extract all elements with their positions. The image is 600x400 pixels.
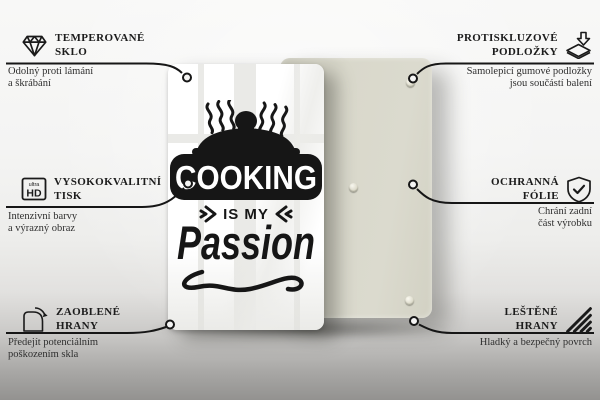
- artwork-word-passion: Passion: [177, 216, 315, 269]
- product-infographic-background: COOKING IS MY Passion: [0, 0, 600, 400]
- feature-title: LEŠTĚNÉ HRANY: [504, 305, 558, 333]
- anti-slip-pad: [405, 296, 414, 305]
- feature-subtitle: Intenzivní barvy a výrazný obraz: [8, 211, 180, 234]
- feature-subtitle: Odolný proti lámání a škrábání: [8, 66, 180, 89]
- svg-text:HD: HD: [26, 188, 42, 200]
- polished-edge-icon: [565, 306, 592, 333]
- artwork-word-cooking: COOKING: [175, 159, 317, 196]
- diamond-icon: [21, 32, 48, 59]
- cooking-artwork: COOKING IS MY Passion: [168, 100, 324, 330]
- feature-title: VYSOKOKVALITNÍ TISK: [54, 175, 161, 203]
- feature-subtitle: Hladký a bezpečný povrch: [392, 337, 592, 349]
- feature-title: TEMPEROVANÉ SKLO: [55, 31, 145, 59]
- feature-subtitle: Chrání zadní část výrobku: [392, 206, 592, 229]
- shield-check-icon: [566, 176, 592, 203]
- feature-subtitle: Samolepicí gumové podložky jsou součástí…: [392, 66, 592, 89]
- flourish-swirl: [184, 272, 301, 290]
- feature-title: PROTISKLUZOVÉ PODLOŽKY: [457, 31, 558, 59]
- ultra-hd-icon: ultra HD: [21, 176, 47, 202]
- anti-slip-pad-icon: [565, 31, 592, 59]
- anti-slip-pad: [349, 183, 358, 192]
- feature-title: ZAOBLENÉ HRANY: [56, 305, 120, 333]
- feature-subtitle: Předejít potenciálním poškozením skla: [8, 337, 180, 360]
- rounded-corner-icon: [21, 306, 49, 333]
- feature-title: OCHRANNÁ FÓLIE: [491, 175, 559, 203]
